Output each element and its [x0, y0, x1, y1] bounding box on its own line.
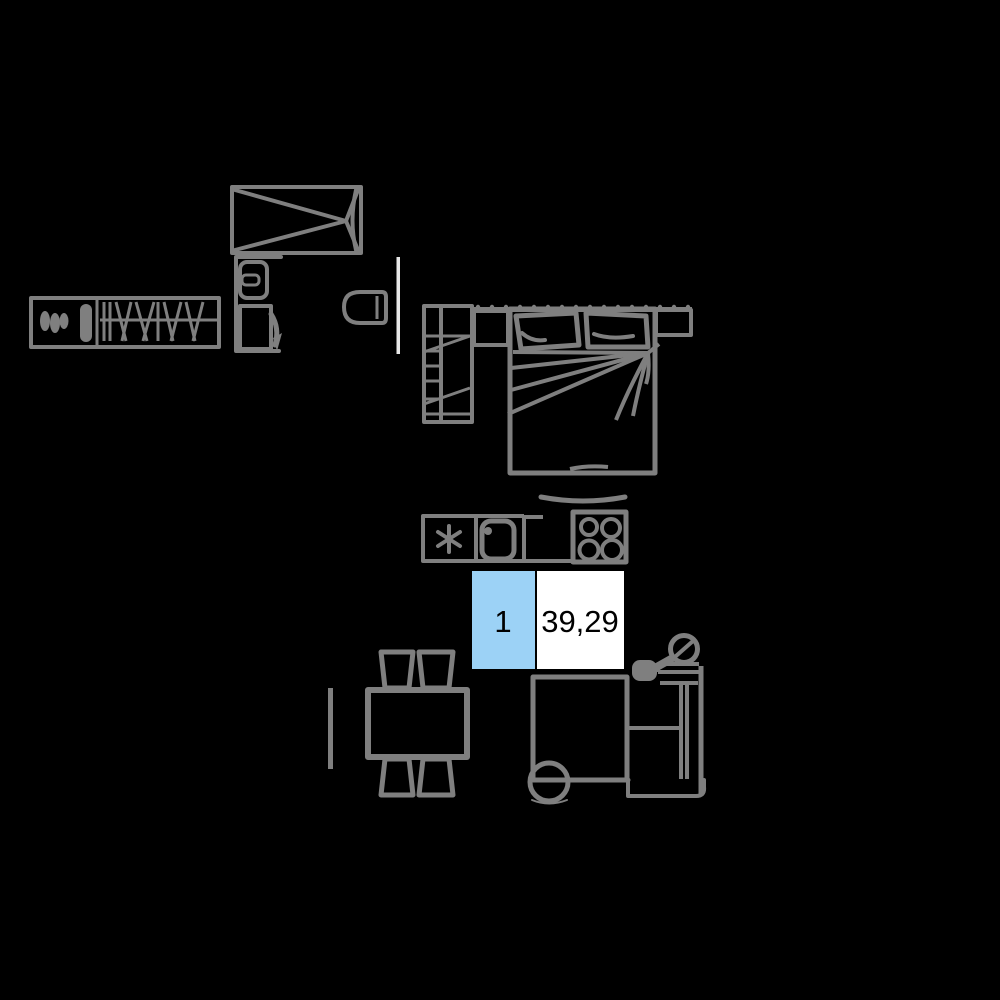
handle-icon: [242, 275, 259, 285]
chair-icon: [381, 652, 413, 688]
ladder-shelf-icon: [424, 306, 472, 422]
toilet-icon: [344, 292, 386, 323]
double-bed-icon: [508, 309, 659, 473]
nightstand-left-icon: [474, 311, 508, 345]
faucet-icon: [484, 527, 492, 535]
pillow-icon: [586, 313, 648, 347]
folded-clothes-icon: [80, 304, 92, 342]
kitchen-hood-icon: [541, 497, 625, 501]
pillow-icon: [516, 313, 579, 349]
chair-icon: [419, 759, 453, 795]
ottoman-icon: [530, 763, 568, 804]
floorplan-canvas: 1 39,29: [0, 0, 1000, 1000]
wall-segment: [397, 257, 401, 354]
blanket-folds-icon: [508, 344, 659, 469]
fridge-icon: [438, 526, 460, 552]
hanger-wardrobe-icon: [31, 298, 219, 347]
burner-icons: [580, 519, 623, 560]
mirrored-wardrobe-icon: [232, 187, 361, 253]
clothes-roll-icon: [50, 313, 60, 333]
nightstand-right-icon: [656, 310, 691, 335]
washer-cabinet-icon: [236, 257, 282, 351]
sofa-icon: [533, 664, 704, 796]
stove-icon: [573, 512, 626, 562]
dining-set-icon: [368, 652, 467, 795]
clothes-roll-icon: [60, 313, 69, 329]
footrest-icon: [628, 780, 704, 796]
sink-icon: [482, 521, 514, 559]
unit-number: 1: [494, 604, 511, 639]
floorplan-svg: 1 39,29: [0, 0, 1000, 1000]
snowflake-icon: [438, 526, 460, 552]
chair-icon: [381, 759, 413, 795]
clothes-roll-icon: [40, 311, 50, 331]
chair-icon: [419, 652, 453, 688]
radiator-icon: [328, 688, 333, 769]
unit-area-value: 39,29: [541, 604, 619, 639]
unit-label[interactable]: 1 39,29: [471, 570, 625, 670]
dining-table-icon: [368, 690, 467, 757]
